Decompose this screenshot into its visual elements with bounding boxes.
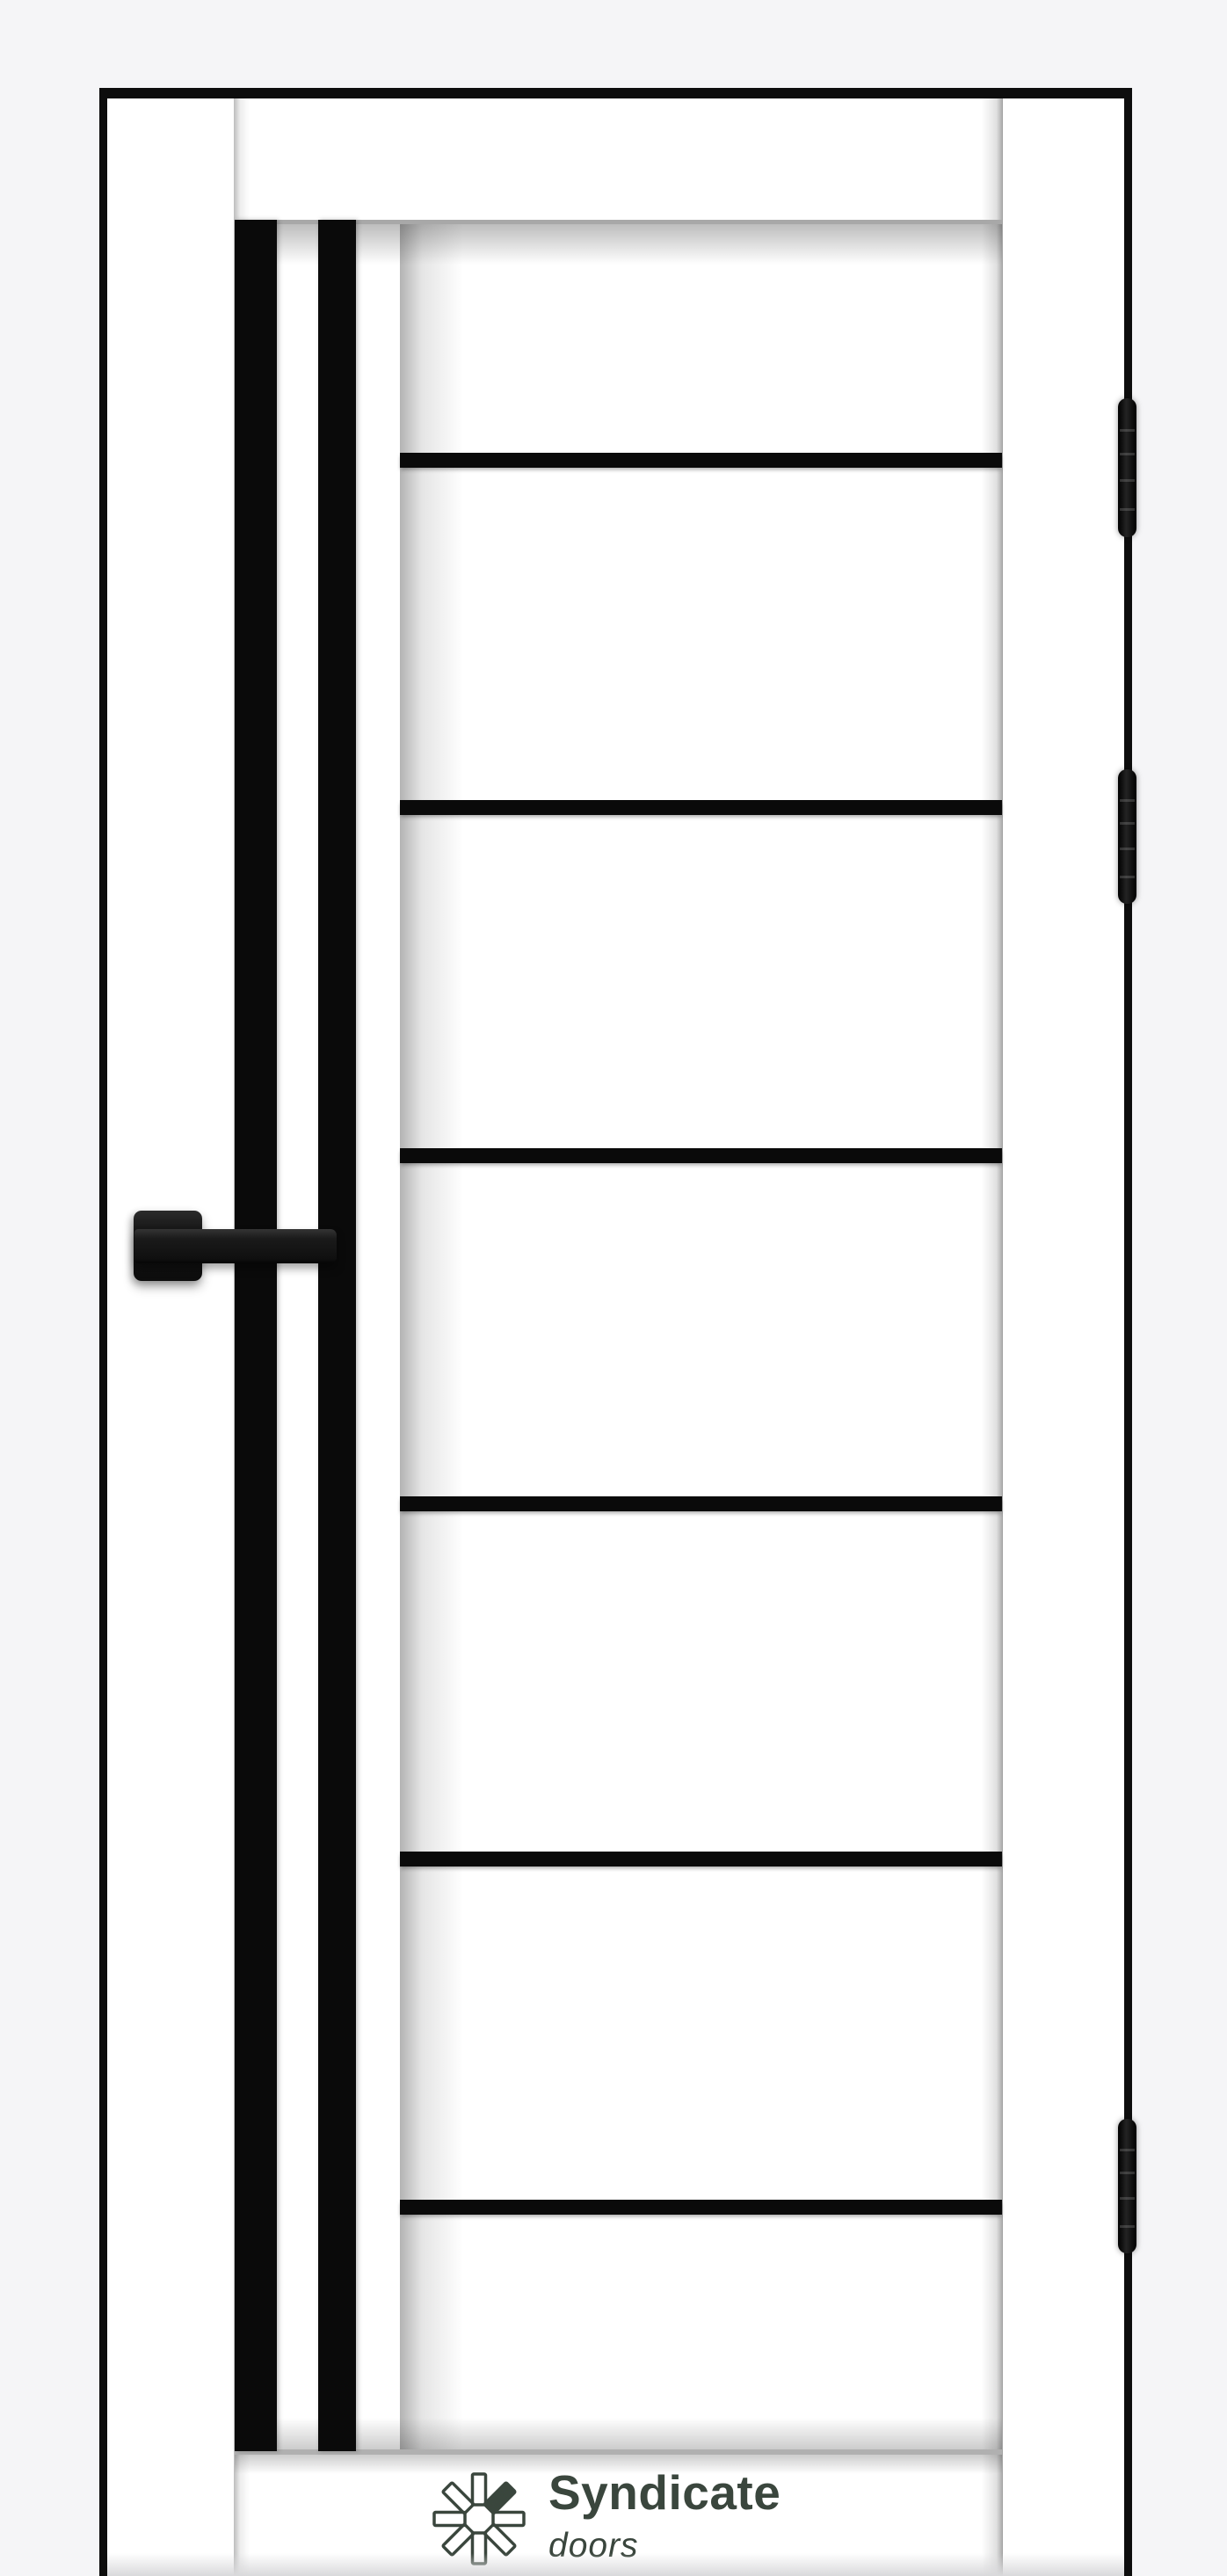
hinge-bottom <box>1118 2119 1136 2253</box>
hinge-knuckle-line <box>1120 453 1135 455</box>
hinge-knuckle-line <box>1120 799 1135 802</box>
door-frame-top-bar <box>99 88 1132 98</box>
studio-background: Syndicate doors <box>0 0 1227 2576</box>
hinge-knuckle-line <box>1120 2149 1135 2151</box>
brand-logo: Syndicate doors <box>432 2465 780 2567</box>
door-handle <box>134 1229 337 1263</box>
hinge-knuckle-line <box>1120 2172 1135 2174</box>
hinge-knuckle-line <box>1120 876 1135 878</box>
hinge-knuckle-line <box>1120 479 1135 482</box>
glass-insert-horizontal-2 <box>400 800 1002 815</box>
door-frame-left-bar <box>99 88 107 2576</box>
hinge-middle <box>1118 769 1136 904</box>
glass-insert-horizontal-3 <box>400 1148 1002 1163</box>
hinge-knuckle-line <box>1120 2225 1135 2228</box>
glass-insert-horizontal-5 <box>400 1852 1002 1867</box>
hinge-knuckle-line <box>1120 429 1135 432</box>
panel-left-shadow <box>400 224 463 2449</box>
glass-insert-vertical-2 <box>318 220 356 2451</box>
glass-insert-vertical-1 <box>235 220 277 2451</box>
brand-logo-text: Syndicate doors <box>548 2465 780 2563</box>
glass-insert-horizontal-6 <box>400 2200 1002 2215</box>
glass-insert-horizontal-1 <box>400 453 1002 468</box>
hinge-top <box>1118 398 1136 537</box>
hinge-knuckle-line <box>1120 2197 1135 2200</box>
bottom-cut-fade <box>107 2553 1124 2576</box>
hinge-knuckle-line <box>1120 848 1135 850</box>
glass-insert-horizontal-4 <box>400 1496 1002 1511</box>
hinge-knuckle-line <box>1120 508 1135 511</box>
hinge-knuckle-line <box>1120 822 1135 825</box>
brand-name: Syndicate <box>548 2469 780 2517</box>
